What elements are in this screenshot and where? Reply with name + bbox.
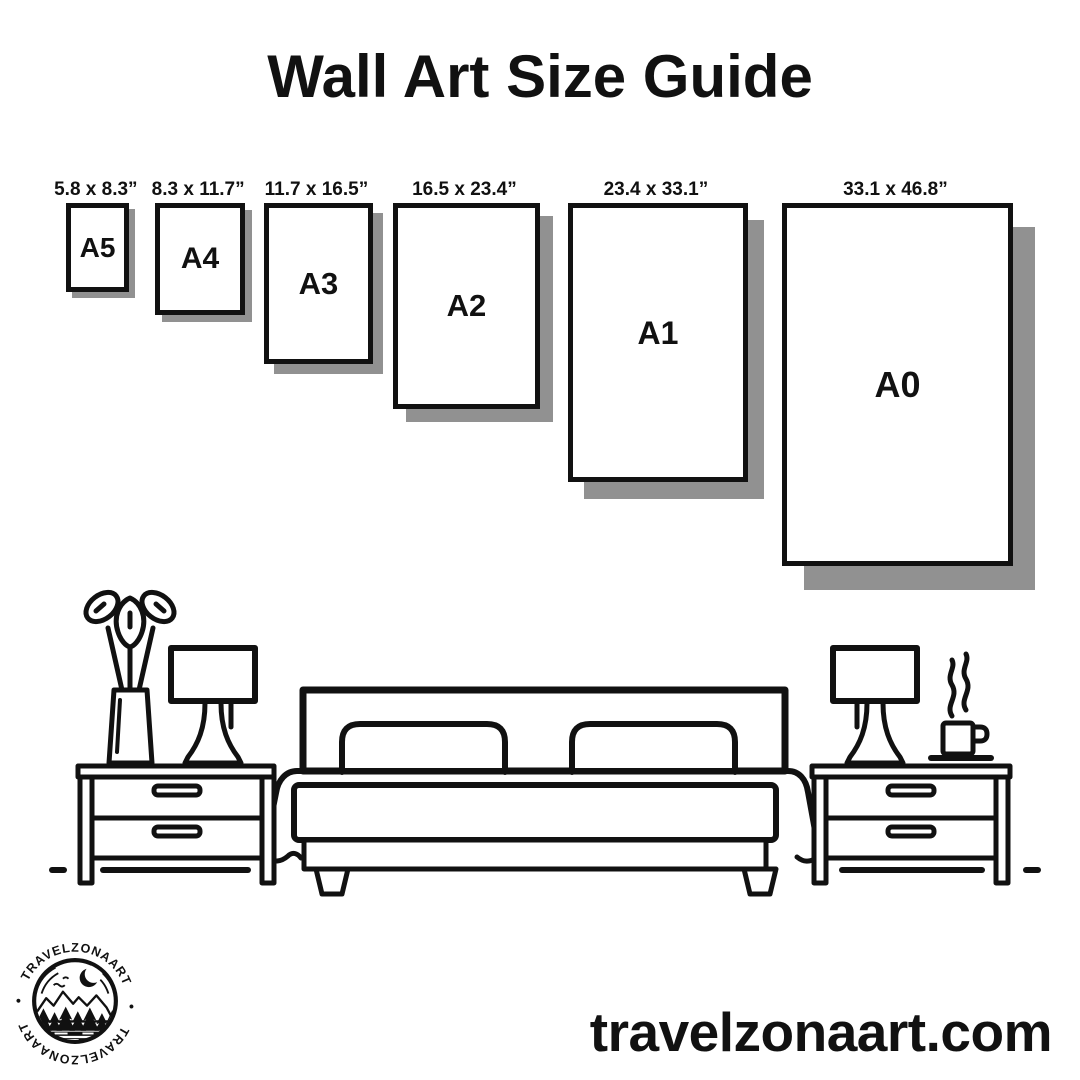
nightstand-left-icon: [78, 766, 274, 883]
svg-text:TRAVELZONAART: TRAVELZONAART: [18, 941, 134, 988]
double-bed-icon: [265, 690, 820, 894]
steam: [950, 660, 954, 716]
cup-body: [943, 723, 973, 754]
svg-text:•: •: [10, 998, 26, 1004]
birds-icon: [54, 977, 69, 986]
bedroom-scene: [0, 0, 1080, 1080]
pillow-right: [572, 724, 735, 772]
table-lamp-right-icon: [833, 648, 917, 763]
brand-separator-dot: •: [124, 1004, 140, 1010]
brand-separator-dot: •: [10, 998, 26, 1004]
nightstand-right-icon: [812, 766, 1010, 883]
steam: [964, 654, 968, 710]
pillow-left: [342, 724, 505, 772]
bed-leg-left: [316, 869, 348, 894]
svg-text:•: •: [124, 1004, 140, 1010]
lamp-shade: [833, 648, 917, 701]
lamp-shade: [171, 648, 255, 701]
vase-plant-icon: [80, 586, 179, 763]
bed-base: [304, 840, 766, 869]
brand-logo: TRAVELZONAART TRAVELZONAART • •: [10, 936, 140, 1066]
duvet-panel: [294, 785, 776, 840]
brand-text-top: TRAVELZONAART: [18, 941, 134, 988]
table-lamp-left-icon: [171, 648, 255, 763]
bed-leg-right: [744, 869, 776, 894]
coffee-cup-icon: [931, 654, 991, 758]
website-url: travelzonaart.com: [590, 1000, 1052, 1064]
